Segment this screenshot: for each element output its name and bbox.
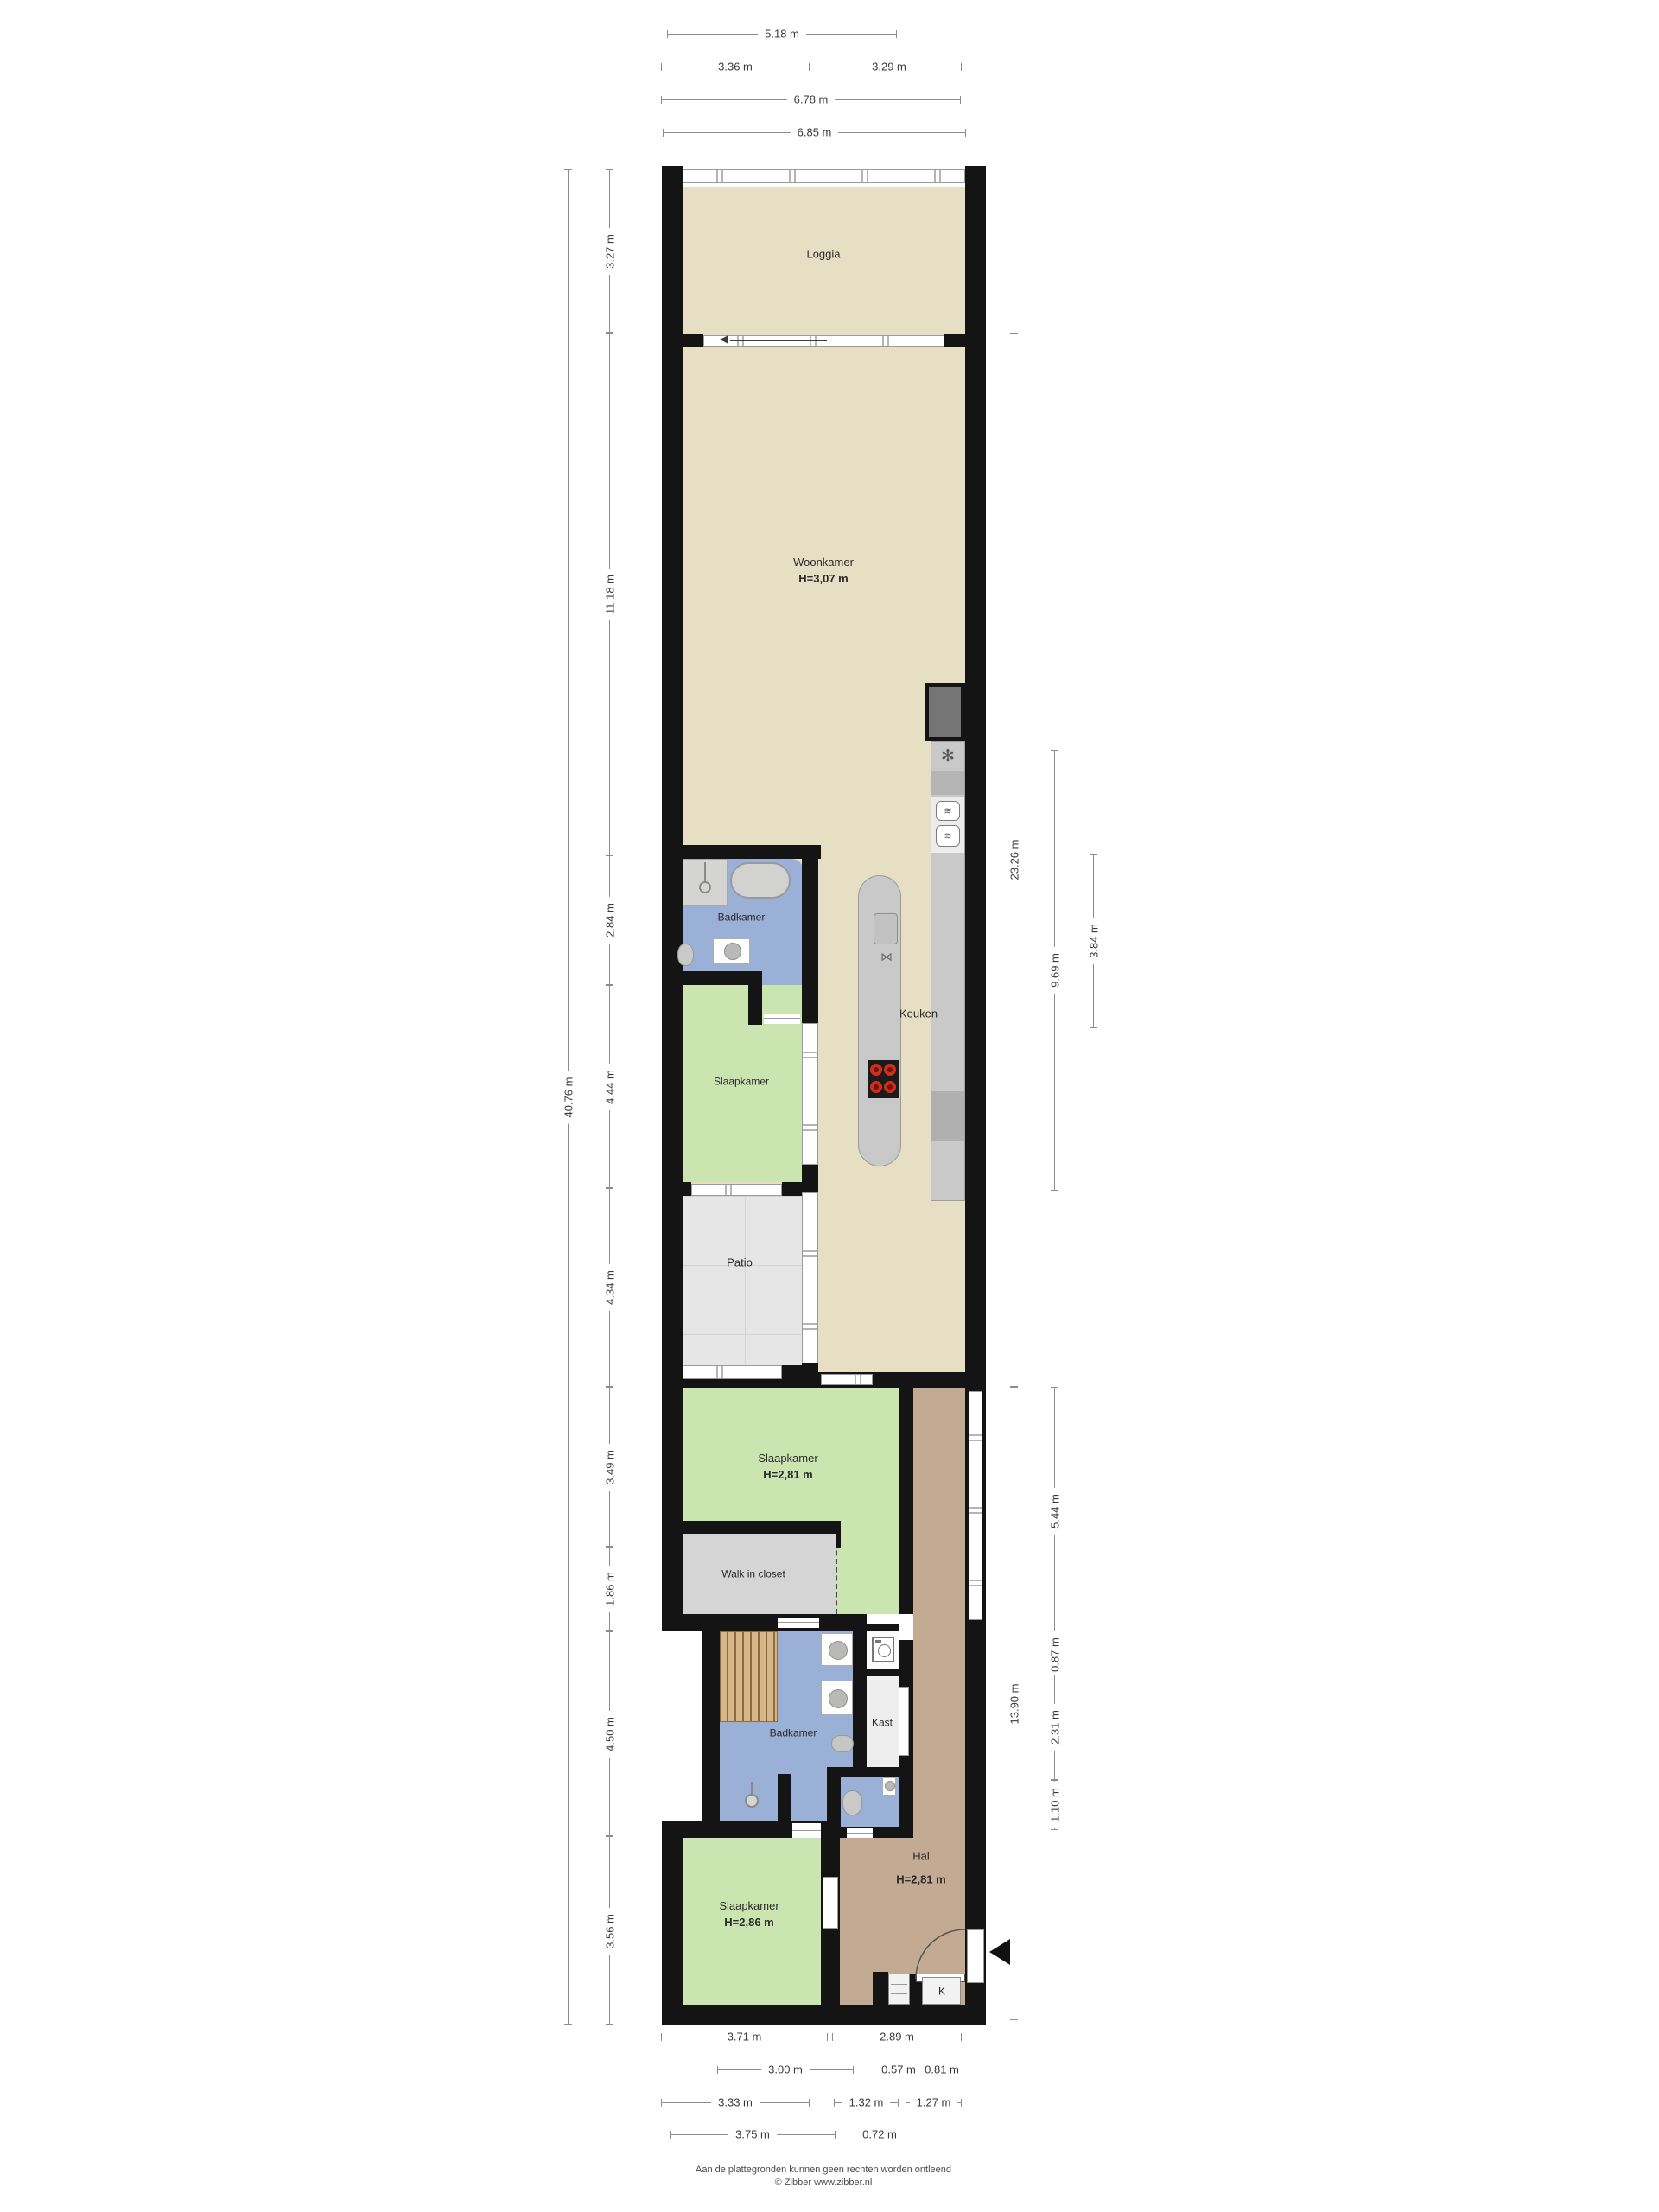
k-closet-label: K: [938, 1984, 945, 1999]
cooktop: [868, 1060, 899, 1098]
dim-right-4: 5.44 m: [1054, 1387, 1055, 1635]
counter-dark-segment: [931, 1091, 964, 1141]
door-walk-in-closet: [778, 1618, 819, 1628]
window-patio-bottom: [683, 1365, 782, 1379]
wall-partition-stub-right: [944, 334, 965, 347]
island-sink: [874, 913, 898, 944]
sink-2-bowl: [829, 1641, 848, 1660]
dim-bottom-6: 1.32 m: [834, 2102, 899, 2103]
door-badkamer-2: [792, 1823, 821, 1838]
wall-right: [965, 166, 986, 2025]
label-keuken: Keuken: [899, 1007, 938, 1023]
oven-icon-2: ≋: [936, 825, 960, 847]
dim-bottom-4: 0.81 m: [921, 2063, 963, 2076]
dim-top-2: 3.29 m: [817, 67, 962, 67]
label-walk-in-closet: Walk in closet: [721, 1567, 785, 1581]
window-loggia-partition: [703, 335, 944, 347]
label-woonkamer: Woonkamer H=3,07 m: [793, 555, 854, 588]
door-hal-slaapkamer-2: [899, 1614, 913, 1640]
label-slaapkamer-2: Slaapkamer H=2,81 m: [758, 1451, 817, 1484]
bathtub: [730, 862, 791, 899]
faucet-icon: ⋈: [880, 948, 893, 965]
wall-partition-stub-left: [683, 334, 703, 347]
dim-left-2: 11.18 m: [609, 333, 610, 855]
window-patio-right: [802, 1192, 818, 1363]
dim-right-6: 2.31 m: [1054, 1675, 1055, 1780]
dim-right-3: 13.90 m: [1014, 1387, 1014, 2020]
burner-icon: [884, 1081, 896, 1093]
label-badkamer-1: Badkamer: [718, 910, 766, 925]
dim-right-1: 9.69 m: [1054, 750, 1055, 1191]
dim-bottom-5: 3.33 m: [661, 2102, 810, 2103]
window-slaapkamer1: [802, 1023, 818, 1165]
wall-hal-left: [899, 1376, 913, 1838]
wall-bottom: [662, 2005, 986, 2025]
sink-3-bowl: [829, 1689, 848, 1708]
label-kast: Kast: [872, 1715, 893, 1730]
wall-badkamer2-left: [702, 1631, 720, 1838]
wall-column-a: [802, 845, 818, 1023]
oven-icon: ≋: [936, 801, 960, 821]
window-zone-divider: [821, 1374, 873, 1385]
dim-left-8: 4.50 m: [609, 1631, 610, 1836]
dim-left-3: 2.84 m: [609, 855, 610, 985]
label-woonkamer-height: H=3,07 m: [793, 571, 854, 588]
door-slaapkamer-3: [823, 1877, 838, 1929]
wall-walkin-stub: [836, 1521, 841, 1548]
window-slaap1-patio: [691, 1184, 782, 1196]
dim-left-6: 3.49 m: [609, 1387, 610, 1547]
label-hal: Hal: [912, 1849, 930, 1866]
burner-icon: [884, 1064, 896, 1076]
wall-badkamer2-top: [662, 1614, 867, 1631]
sliding-door-line: [730, 340, 827, 341]
dim-right-2: 3.84 m: [1093, 854, 1094, 1028]
burner-icon: [870, 1081, 882, 1093]
sauna: [720, 1631, 778, 1722]
wall-badkamer1-top: [662, 845, 821, 859]
window-hal-right: [969, 1391, 982, 1620]
label-hal-height: H=2,81 m: [896, 1872, 945, 1889]
toilet-1: [677, 944, 694, 966]
label-slaapkamer-3-height: H=2,86 m: [719, 1915, 779, 1931]
entrance-arrow-icon: [989, 1939, 1010, 1965]
sliding-door-arrow-icon: [720, 335, 728, 344]
freezer-icon: ✻: [941, 745, 955, 769]
wall-slaap1-patio-stub-l: [662, 1182, 691, 1196]
dim-top-4: 6.85 m: [663, 132, 966, 133]
shower-head-icon: [699, 881, 711, 893]
dim-left-5: 4.34 m: [609, 1188, 610, 1387]
wall-niche-stub-a: [873, 1972, 888, 2006]
shaft: [925, 683, 965, 741]
dim-right-0: 23.26 m: [1014, 333, 1014, 1387]
fountain-sink-bowl: [885, 1781, 895, 1791]
label-badkamer-2: Badkamer: [770, 1726, 817, 1740]
wall-left-lower: [662, 1821, 683, 2025]
wall-badkamer1-bottom: [662, 971, 762, 985]
dim-top-1: 3.36 m: [661, 67, 810, 67]
wall-badkamer1-ext-left: [748, 971, 762, 1025]
door-badkamer-1: [764, 1014, 800, 1024]
dim-bottom-7: 1.27 m: [906, 2102, 962, 2103]
label-slaapkamer-2-height: H=2,81 m: [758, 1467, 817, 1484]
toilet-2: [842, 1790, 862, 1815]
entrance-cabinet: [888, 1974, 910, 2005]
dim-bottom-0: 3.71 m: [661, 2037, 828, 2037]
fridge: [931, 771, 964, 795]
dim-top-3: 6.78 m: [661, 99, 961, 100]
dim-bottom-1: 2.89 m: [832, 2037, 962, 2037]
dim-right-5: 0.87 m: [1054, 1635, 1055, 1675]
floor-plan-page: { "page": {"background": "#ffffff"}, "ro…: [0, 0, 1659, 2212]
window-loggia-top: [683, 169, 965, 183]
dim-bottom-9: 0.72 m: [859, 2128, 900, 2141]
wall-walkin-top: [683, 1521, 841, 1534]
label-slaapkamer-3-name: Slaapkamer: [719, 1898, 779, 1915]
footer-copyright: © Zibber www.zibber.nl: [775, 2177, 873, 2188]
room-patio: [683, 1196, 804, 1365]
burner-icon: [870, 1064, 882, 1076]
dim-left-0: 40.76 m: [568, 169, 569, 2025]
label-woonkamer-name: Woonkamer: [793, 555, 854, 571]
bidet: [831, 1735, 854, 1752]
footer-disclaimer: Aan de plattegronden kunnen geen rechten…: [696, 2164, 951, 2175]
sink-1-bowl: [724, 943, 741, 960]
dim-left-7: 1.86 m: [609, 1547, 610, 1631]
wall-left-upper: [662, 166, 683, 1631]
dim-right-7: 1.10 m: [1054, 1780, 1055, 1830]
room-hal: [913, 1386, 965, 2005]
dim-bottom-3: 0.57 m: [878, 2063, 919, 2076]
wall-kast-top: [867, 1669, 899, 1676]
washing-machine: [872, 1637, 894, 1662]
label-patio: Patio: [727, 1255, 753, 1272]
shower-head-2-icon: [745, 1794, 759, 1808]
dim-bottom-8: 3.75 m: [670, 2134, 836, 2135]
dim-left-9: 3.56 m: [609, 1836, 610, 2025]
label-slaapkamer-3: Slaapkamer H=2,86 m: [719, 1898, 779, 1931]
dim-left-1: 3.27 m: [609, 169, 610, 333]
dim-bottom-2: 3.00 m: [717, 2069, 854, 2070]
shower-stem: [704, 862, 706, 883]
door-toilet: [847, 1828, 873, 1838]
washing-machine-drum-icon: [878, 1644, 891, 1657]
label-loggia: Loggia: [806, 247, 840, 264]
door-kast-sliding: [899, 1687, 909, 1756]
dim-top-0: 5.18 m: [667, 34, 897, 35]
dim-left-4: 4.44 m: [609, 985, 610, 1188]
label-slaapkamer-2-name: Slaapkamer: [758, 1451, 817, 1467]
wall-badkamer2-right: [853, 1631, 867, 1774]
label-slaapkamer-1: Slaapkamer: [714, 1074, 769, 1089]
